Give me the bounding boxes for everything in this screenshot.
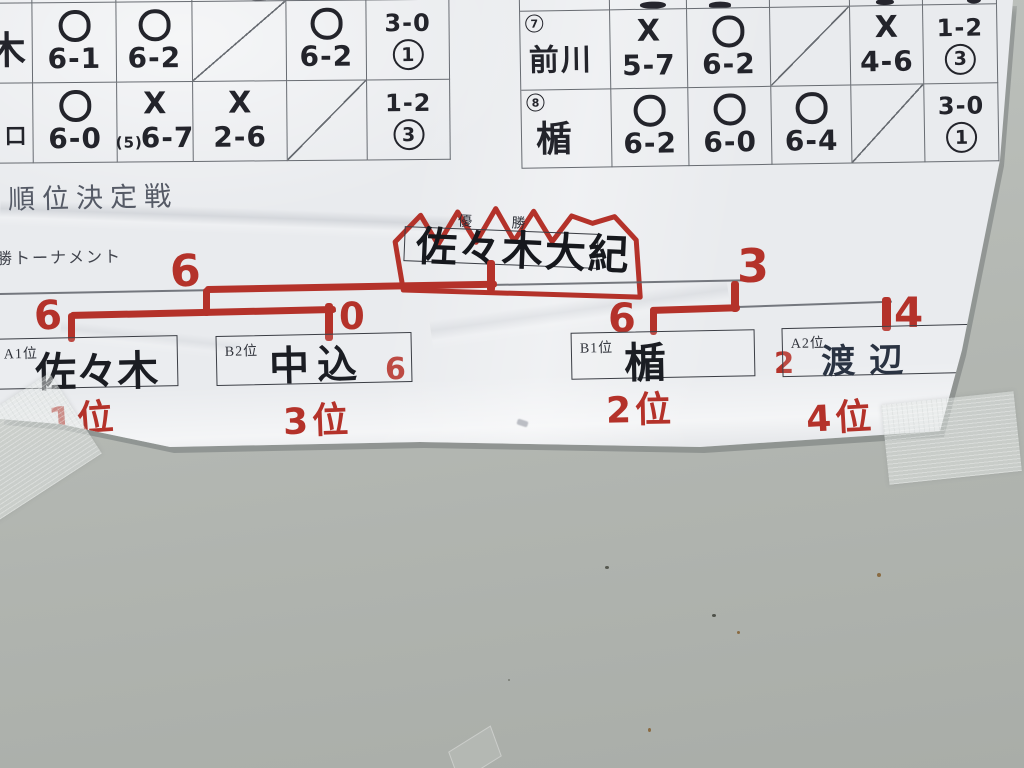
match-cell: 6-4 [771,86,852,165]
match-score: 4-6 [860,44,914,78]
tape-right [881,391,1022,484]
self-cell-diagonal [192,1,287,82]
rank-circled: 1 [946,122,977,153]
loss-mark: X [637,16,661,48]
self-cell-diagonal [851,84,925,163]
match-score: 6-2 [127,41,181,74]
photo-wall-background: 木 6-1 6-2 6-2 3-01 口 6-0 X(5)6-7 X2-6 1-… [0,0,1024,768]
loss-mark: X [143,89,166,121]
win-mark [713,93,745,125]
loss-mark: X [228,88,251,120]
section-title: 順位決定戦 [8,174,179,217]
match-score: 6-2 [623,126,677,160]
semi-left-sasaki-score: 6 [33,295,64,337]
faint-pencil-mark [516,418,528,427]
win-mark [310,8,342,40]
player-name: 前川 [528,35,593,80]
player-name-cell: 8楯 [521,89,612,168]
win-mark [633,94,665,126]
match-cell: 6-0 [33,83,118,164]
wall-speck [508,679,510,681]
player-name-cell: 木 [0,3,33,84]
player-number-circled: 8 [526,93,544,111]
champion-riser-red [487,260,495,292]
final-rank-watanabe: 4位 [805,387,877,443]
results-sheet-paper: 木 6-1 6-2 6-2 3-01 口 6-0 X(5)6-7 X2-6 1-… [0,0,1024,470]
loss-mark: X [875,12,899,44]
bracket-box-sasaki: A1位 佐々木 [0,335,178,390]
match-score: 6-2 [702,47,756,81]
match-cell: 6-0 [688,87,772,166]
group-b-table: 7前川 X5-7 6-2 X4-6 1-23 8楯 6-2 6-0 6-4 3-… [519,0,1000,169]
match-cell: 6-1 [32,3,117,84]
wall-speck [605,566,609,569]
wall-speck [737,631,740,634]
match-cell: 6-2 [611,88,689,167]
match-cell: X4-6 [850,5,924,85]
bracket-player-name: 渡辺 [821,332,918,383]
wall-speck [648,728,651,732]
set-score: 6-7 [141,121,195,154]
rank-circled: 3 [945,43,976,74]
seed-label: B1位 [580,337,614,358]
match-score: 6-4 [785,124,839,158]
win-loss-record: 3-0 [384,9,431,37]
final-rank-nakagomi: 3位 [282,391,353,445]
final-rank-tate: 2位 [606,380,676,433]
player-number-circled: 7 [525,14,543,32]
match-cell: 6-2 [116,2,193,83]
wall-speck [712,614,716,617]
seed-label: B2位 [225,340,259,361]
group-a-table: 木 6-1 6-2 6-2 3-01 口 6-0 X(5)6-7 X2-6 1-… [0,0,451,164]
player-name: 木 [0,19,26,74]
win-loss-record: 1-2 [385,89,432,117]
win-loss-record: 1-2 [936,13,983,42]
bracket-box-tate: B1位 楯 [571,329,756,380]
final-left-score: 6 [169,249,202,295]
player-name-cell: 7前川 [520,10,611,90]
match-cell: 6-2 [687,8,771,88]
win-mark [58,10,90,42]
seed-label: A1位 [4,343,39,364]
tournament-label: 勝トーナメント [0,243,122,269]
rank-circled: 1 [392,39,423,70]
result-cell: 1-23 [923,4,998,84]
match-cell: X(5)6-7 [117,82,194,163]
match-score: 5-7 [622,48,676,82]
win-mark [138,9,170,41]
match-cell: X5-7 [610,9,688,89]
champion-name: 佐々木大紀 [415,212,632,281]
wall-speck [877,573,881,577]
match-score: 2-6 [213,120,267,153]
player-name-cell: 口 [0,83,34,164]
bracket-box-watanabe: A2位 渡辺 [781,324,972,377]
win-mark [712,15,744,47]
result-cell: 1-23 [367,80,451,161]
player-name: 楯 [536,110,573,163]
match-score: 6-1 [47,42,101,75]
self-cell-diagonal [770,7,851,87]
tiebreak-score: (5) [116,133,143,151]
bracket-player-name: 中込 [268,332,365,392]
self-cell-diagonal [287,80,368,161]
bracket-box-nakagomi: B2位 中込 [215,332,412,386]
win-loss-record: 3-0 [938,91,985,120]
result-cell: 3-01 [366,0,450,80]
match-score: 6-2 [299,40,353,73]
wall-sticker-residue [448,725,502,768]
final-right-score: 3 [737,243,769,289]
match-cell: X2-6 [193,81,288,162]
win-mark [59,90,91,122]
match-score: 6-0 [48,122,102,155]
semi-left-nakagomi-score: 0 [339,298,365,335]
win-mark [795,92,827,124]
rank-circled: 3 [393,119,424,150]
match-cell: 6-2 [286,0,367,81]
match-score: (5)6-7 [116,121,195,155]
player-name: 口 [4,118,26,154]
semi-right-line-red [650,304,740,314]
result-cell: 3-01 [924,83,999,162]
match-score: 6-0 [703,125,757,159]
